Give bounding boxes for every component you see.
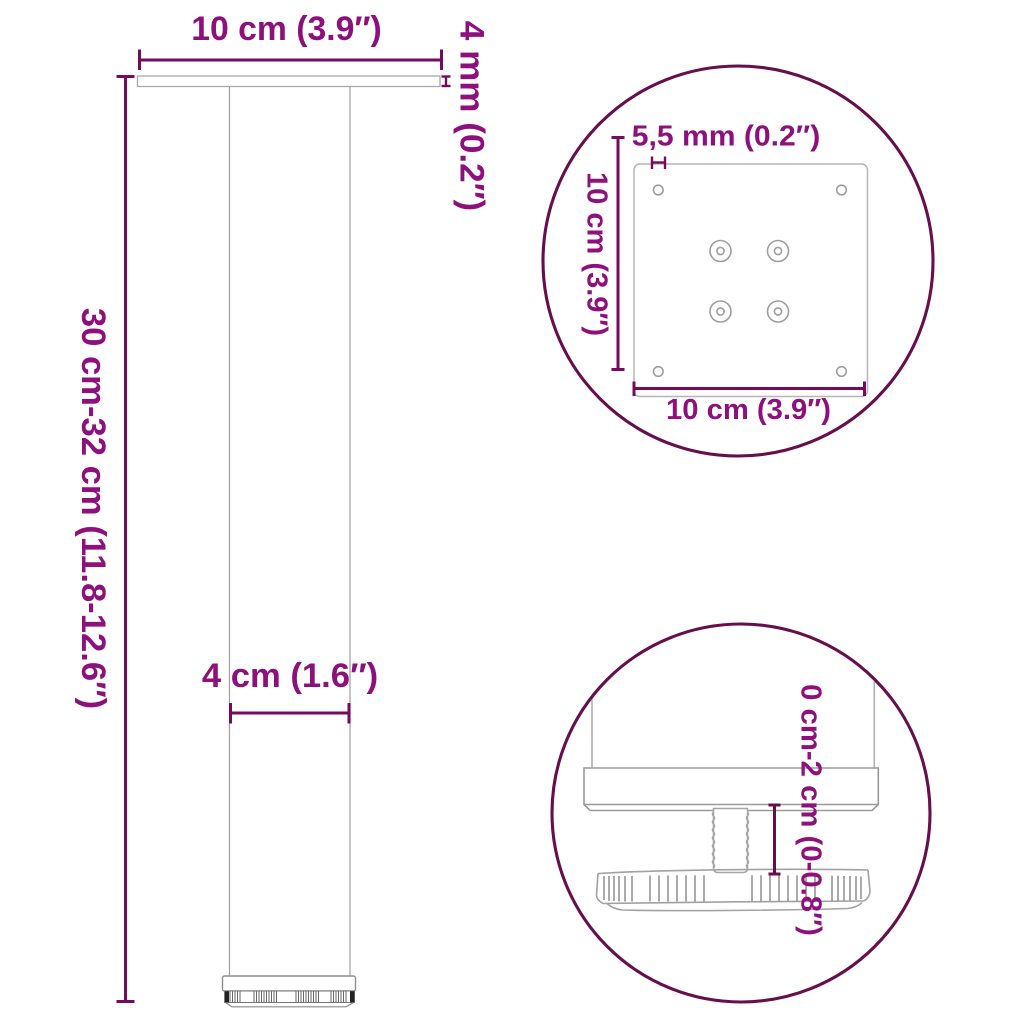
svg-text:30 cm-32 cm (11.8-12.6″): 30 cm-32 cm (11.8-12.6″): [74, 308, 112, 709]
svg-text:0 cm-2 cm (0-0.8″): 0 cm-2 cm (0-0.8″): [795, 684, 827, 936]
svg-text:4 mm (0.2″): 4 mm (0.2″): [453, 21, 490, 211]
svg-text:4 cm (1.6″): 4 cm (1.6″): [202, 657, 378, 695]
svg-text:10 cm (3.9″): 10 cm (3.9″): [581, 172, 613, 336]
svg-text:10 cm (3.9″): 10 cm (3.9″): [191, 10, 381, 48]
svg-text:5,5 mm (0.2″): 5,5 mm (0.2″): [632, 120, 820, 152]
svg-text:10 cm (3.9″): 10 cm (3.9″): [666, 394, 831, 426]
